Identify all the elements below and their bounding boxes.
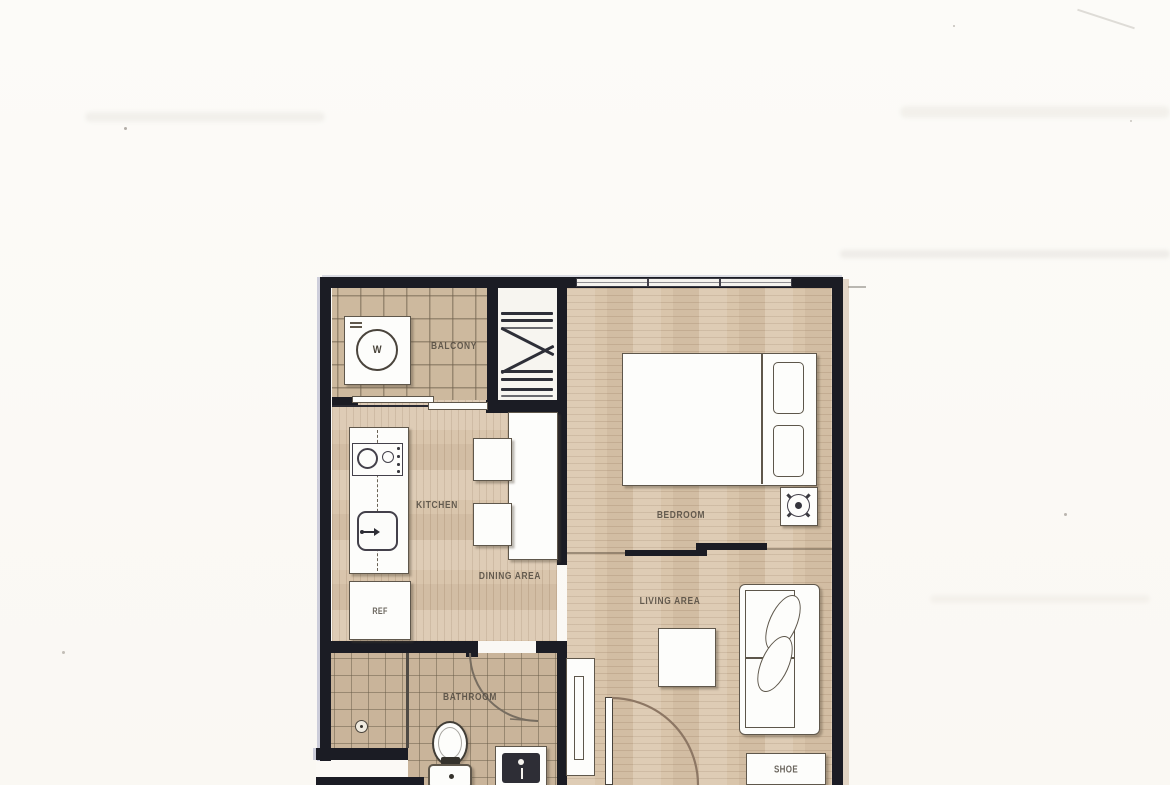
vanity-sink <box>495 746 547 785</box>
bedroom-label: BEDROOM <box>657 509 705 521</box>
window-mullion <box>647 279 649 286</box>
bed <box>622 353 817 486</box>
bed-headboard-line <box>761 354 763 484</box>
kitchen-sink <box>357 511 398 551</box>
shower-drain <box>355 720 368 733</box>
scan-streak <box>900 106 1170 118</box>
pillow <box>773 362 804 414</box>
dining-chair <box>473 503 512 546</box>
washing-machine: W <box>344 316 411 385</box>
dining-chair <box>473 438 512 481</box>
wall-bathroom-top-left <box>331 641 470 653</box>
nightstand <box>780 487 818 526</box>
scan-streak <box>85 112 325 122</box>
stove-knob <box>397 447 400 450</box>
scanned-floor-plan-page: W BALCONY REF KITCHEN DINING AREA <box>0 0 1170 785</box>
sink-basin <box>502 753 540 783</box>
stove-burner-small <box>382 451 394 463</box>
stove <box>352 443 403 476</box>
toilet-tank <box>428 764 472 785</box>
scan-speck <box>953 25 955 27</box>
pillow <box>773 425 804 477</box>
balcony-slider-panel <box>428 402 488 410</box>
bathroom-door-arc <box>462 645 557 730</box>
window-mullion <box>719 279 721 286</box>
stove-burner-large <box>357 448 378 469</box>
wall-right-fringe <box>843 279 849 785</box>
drain-hole <box>360 725 363 728</box>
louver-line <box>501 319 553 322</box>
louver-line <box>501 327 553 329</box>
scan-streak <box>930 595 1150 603</box>
bedroom-window <box>576 278 792 287</box>
dining-area-label: DINING AREA <box>479 570 541 582</box>
louver-line <box>501 388 553 391</box>
scan-speck <box>124 127 127 130</box>
shower-partition <box>406 653 409 748</box>
scan-streak <box>840 250 1170 258</box>
balcony-label: BALCONY <box>431 340 477 352</box>
louver-line <box>501 378 553 381</box>
coffee-table <box>658 628 716 687</box>
plant-center <box>795 502 802 509</box>
stove-knob <box>397 455 400 458</box>
scan-speck <box>1064 513 1067 516</box>
sliding-partition-panel <box>625 550 707 557</box>
partition-track <box>567 552 627 554</box>
faucet-arrowhead <box>374 528 380 536</box>
wall-ac-ledge-left <box>487 288 498 400</box>
stove-knob <box>397 470 400 473</box>
scan-speck <box>1130 120 1132 122</box>
wall-lower-stub <box>316 777 424 785</box>
louver-diagonal <box>501 327 555 356</box>
toilet-bowl-inner <box>438 727 462 759</box>
dining-table <box>508 412 558 560</box>
living-area-label: LIVING AREA <box>640 595 701 607</box>
louver-line <box>501 370 553 373</box>
wall-left <box>320 277 331 761</box>
ac-ledge <box>498 288 557 400</box>
refrigerator-label: REF <box>372 606 387 616</box>
washer-detail-line <box>350 322 362 324</box>
wall-mid-upper <box>557 277 567 565</box>
kitchen-label: KITCHEN <box>416 499 458 511</box>
scan-speck <box>62 651 65 654</box>
washer-drum: W <box>356 329 398 371</box>
basin-drain <box>518 759 524 765</box>
bathroom-label: BATHROOM <box>443 691 497 703</box>
wall-right <box>832 277 843 785</box>
scan-scratch <box>1077 9 1135 29</box>
entry-door-arc <box>565 690 710 785</box>
basin-faucet-line <box>521 768 524 779</box>
washer-label: W <box>373 344 382 356</box>
shoe-cabinet-label: SHOE <box>774 765 798 776</box>
balcony-slider-panel <box>352 396 434 403</box>
washer-detail-line <box>350 326 362 328</box>
toilet-flush-button <box>449 774 454 779</box>
scan-scratch <box>848 286 866 288</box>
louver-line <box>501 395 553 397</box>
stove-knob <box>397 463 400 466</box>
louver-line <box>501 312 553 315</box>
wall-shower-bottom <box>316 748 408 760</box>
partition-track <box>767 548 832 550</box>
